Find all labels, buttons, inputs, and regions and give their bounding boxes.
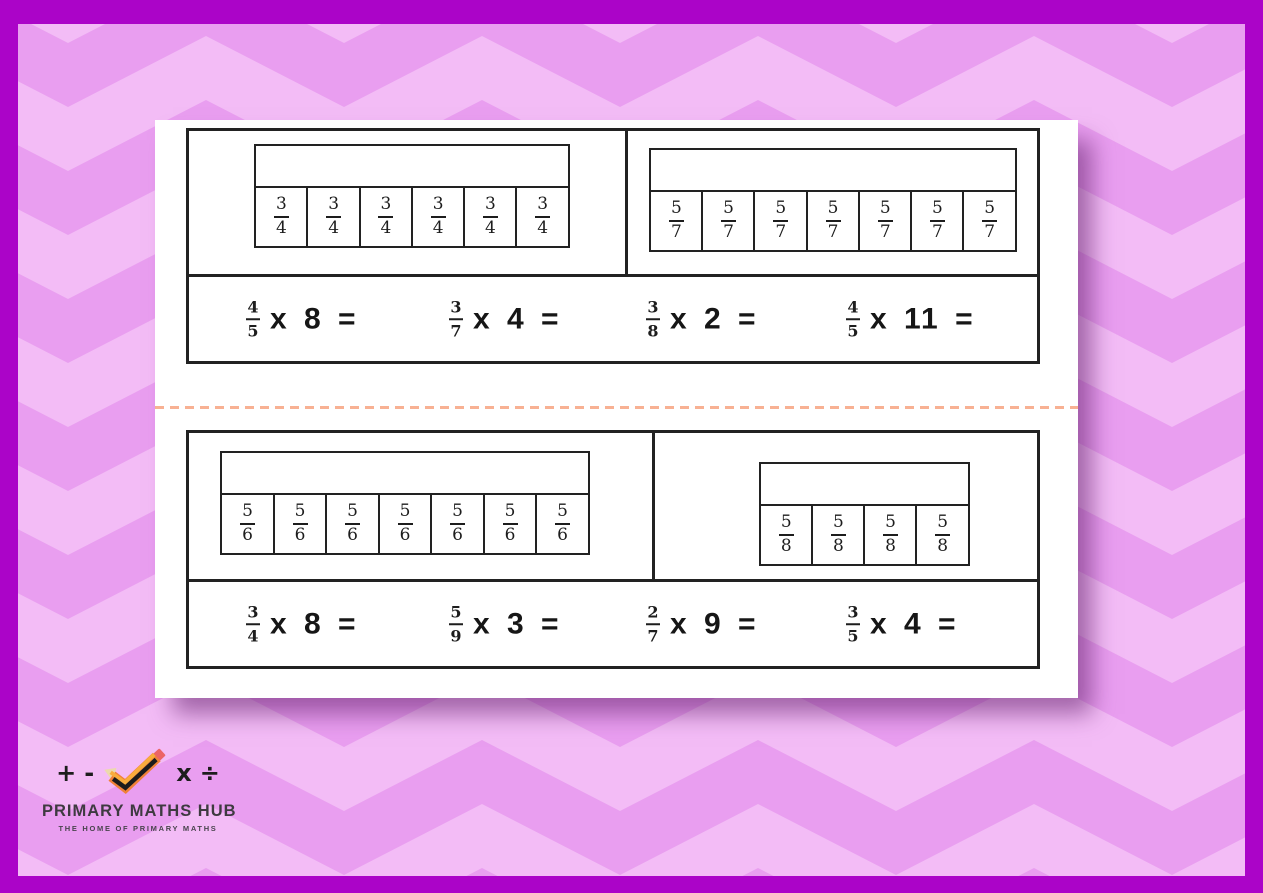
fraction-label: 57 [982,200,997,241]
bar-model-box-top-left: 343434343434 [186,128,628,277]
fraction-label: 58 [831,514,846,555]
whole-bar-empty [254,144,570,188]
fraction-label: 57 [930,200,945,241]
fraction-label: 34 [274,196,289,237]
problem-equation-text: x 8 = [270,302,358,336]
whole-bar-empty [649,148,1017,192]
fraction-numerator: 5 [242,503,253,520]
fraction-denominator: 8 [833,538,844,555]
fraction-numerator: 5 [984,200,995,217]
fraction-cell: 57 [753,190,808,252]
fraction-numerator: 5 [828,200,839,217]
fraction-numerator: 5 [450,604,461,620]
dashed-cut-line [155,406,1078,409]
pencil-checkmark-icon [103,747,167,799]
fraction-bar-line [246,623,260,626]
fraction-cell: 34 [254,186,309,248]
fraction-label: 34 [483,196,498,237]
fraction-numerator: 5 [400,503,411,520]
bar-model: 56565656565656 [220,451,590,555]
fraction-cell: 34 [306,186,361,248]
multiplication-problem: 45x 11 = [846,299,975,339]
fraction-bar-line [846,318,860,321]
fraction-numerator: 5 [932,200,943,217]
fraction-numerator: 3 [328,196,339,213]
fraction-cell: 56 [378,493,433,555]
fraction-label: 56 [240,503,255,544]
whole-bar-empty [220,451,590,495]
divide-icon: ÷ [200,761,220,785]
multiplication-problem: 37x 4 = [449,299,561,339]
fraction-denominator: 7 [880,224,891,241]
fraction-cell: 56 [483,493,538,555]
fraction-label: 56 [555,503,570,544]
fraction-label: 57 [669,200,684,241]
fraction-label: 45 [846,299,860,339]
fraction-cell: 57 [649,190,704,252]
fraction-denominator: 7 [671,224,682,241]
fraction-denominator: 6 [295,527,306,544]
logo-title: PRIMARY MATHS HUB [42,802,234,821]
fraction-numerator: 5 [775,200,786,217]
problem-equation-text: x 8 = [270,607,358,641]
problem-equation-text: x 9 = [670,607,758,641]
fraction-numerator: 5 [295,503,306,520]
fraction-numerator: 4 [847,299,858,315]
fraction-numerator: 3 [380,196,391,213]
fraction-cell: 34 [515,186,570,248]
fraction-numerator: 5 [723,200,734,217]
fraction-label: 56 [345,503,360,544]
fraction-cell: 57 [910,190,965,252]
fraction-denominator: 5 [847,323,858,339]
fraction-label: 56 [398,503,413,544]
fraction-cell: 56 [273,493,328,555]
multiplication-problem: 59x 3 = [449,604,561,644]
fraction-denominator: 8 [885,538,896,555]
fraction-denominator: 7 [828,224,839,241]
fraction-cell: 58 [863,504,918,566]
fraction-label: 38 [646,299,660,339]
fraction-numerator: 5 [885,514,896,531]
fraction-label: 57 [773,200,788,241]
fraction-numerator: 3 [433,196,444,213]
fraction-cell: 34 [359,186,414,248]
fraction-denominator: 7 [450,323,461,339]
multiplication-problem: 45x 8 = [246,299,358,339]
fraction-numerator: 5 [347,503,358,520]
primary-maths-hub-logo: + - x ÷ PRIMARY MATHS HUB THE HOME OF PR… [42,746,234,833]
fraction-numerator: 5 [671,200,682,217]
fraction-label: 59 [449,604,463,644]
fraction-label: 57 [721,200,736,241]
bar-model-box-bottom-right: 58585858 [652,430,1040,582]
fraction-label: 35 [846,604,860,644]
fraction-numerator: 3 [847,604,858,620]
fraction-bar-line [646,623,660,626]
problems-row-top: 45x 8 =37x 4 =38x 2 =45x 11 = [186,274,1040,364]
fraction-label: 58 [935,514,950,555]
fraction-numerator: 2 [647,604,658,620]
fraction-label: 56 [293,503,308,544]
fraction-numerator: 5 [557,503,568,520]
fraction-numerator: 5 [505,503,516,520]
plus-icon: + [56,761,76,785]
multiplication-problem: 34x 8 = [246,604,358,644]
fraction-label: 34 [246,604,260,644]
fraction-cell: 57 [962,190,1017,252]
fraction-denominator: 8 [647,323,658,339]
fraction-denominator: 6 [400,527,411,544]
fraction-label: 57 [826,200,841,241]
problems-row-bottom: 34x 8 =59x 3 =27x 9 =35x 4 = [186,579,1040,669]
fraction-label: 37 [449,299,463,339]
bar-model-box-top-right: 57575757575757 [625,128,1040,277]
fraction-bar-line [846,623,860,626]
fraction-label: 57 [878,200,893,241]
fraction-cell: 57 [806,190,861,252]
fraction-numerator: 3 [537,196,548,213]
fraction-numerator: 5 [781,514,792,531]
multiplication-problem: 27x 9 = [646,604,758,644]
fraction-cell: 34 [411,186,466,248]
fraction-label: 45 [246,299,260,339]
fraction-label: 34 [535,196,550,237]
fraction-numerator: 3 [647,299,658,315]
fraction-bar-line [449,623,463,626]
fraction-numerator: 3 [485,196,496,213]
fraction-cells-row: 58585858 [759,504,970,566]
fraction-numerator: 3 [247,604,258,620]
problem-equation-text: x 11 = [870,302,975,336]
fraction-denominator: 7 [723,224,734,241]
fraction-label: 58 [883,514,898,555]
fraction-cells-row: 57575757575757 [649,190,1017,252]
fraction-denominator: 6 [242,527,253,544]
bar-model: 58585858 [759,462,970,566]
fraction-label: 56 [450,503,465,544]
fraction-numerator: 3 [276,196,287,213]
fraction-cell: 58 [759,504,814,566]
fraction-denominator: 4 [380,220,391,237]
fraction-denominator: 7 [647,628,658,644]
bar-model-box-bottom-left: 56565656565656 [186,430,655,582]
fraction-cell: 56 [535,493,590,555]
logo-symbols-row: + - x ÷ [42,746,234,800]
fraction-label: 56 [503,503,518,544]
problem-equation-text: x 2 = [670,302,758,336]
fraction-denominator: 5 [847,628,858,644]
fraction-denominator: 4 [485,220,496,237]
fraction-denominator: 6 [557,527,568,544]
multiplication-problem: 38x 2 = [646,299,758,339]
multiplication-problem: 35x 4 = [846,604,958,644]
minus-icon: - [84,761,94,785]
fraction-numerator: 3 [450,299,461,315]
fraction-cell: 56 [220,493,275,555]
bar-model: 343434343434 [254,144,570,248]
fraction-denominator: 6 [452,527,463,544]
fraction-denominator: 4 [433,220,444,237]
fraction-cell: 56 [430,493,485,555]
whole-bar-empty [759,462,970,506]
fraction-cell: 57 [701,190,756,252]
fraction-label: 34 [378,196,393,237]
fraction-numerator: 4 [247,299,258,315]
fraction-label: 27 [646,604,660,644]
fraction-cell: 34 [463,186,518,248]
fraction-bar-line [246,318,260,321]
fraction-cell: 57 [858,190,913,252]
fraction-denominator: 4 [247,628,258,644]
fraction-numerator: 5 [937,514,948,531]
fraction-cells-row: 343434343434 [254,186,570,248]
fraction-cells-row: 56565656565656 [220,493,590,555]
fraction-label: 34 [431,196,446,237]
fraction-bar-line [646,318,660,321]
fraction-denominator: 4 [537,220,548,237]
worksheet-page: 343434343434 57575757575757 45x 8 =37x 4… [155,120,1078,698]
logo-tagline: THE HOME OF PRIMARY MATHS [42,824,234,833]
fraction-label: 34 [326,196,341,237]
fraction-denominator: 8 [937,538,948,555]
fraction-cell: 58 [915,504,970,566]
fraction-denominator: 7 [932,224,943,241]
fraction-denominator: 7 [984,224,995,241]
fraction-denominator: 9 [450,628,461,644]
fraction-denominator: 8 [781,538,792,555]
fraction-numerator: 5 [452,503,463,520]
fraction-denominator: 7 [775,224,786,241]
fraction-bar-line [449,318,463,321]
fraction-numerator: 5 [880,200,891,217]
bar-model: 57575757575757 [649,148,1017,252]
fraction-denominator: 4 [276,220,287,237]
problem-equation-text: x 4 = [473,302,561,336]
fraction-numerator: 5 [833,514,844,531]
fraction-label: 58 [779,514,794,555]
fraction-denominator: 6 [347,527,358,544]
problem-equation-text: x 4 = [870,607,958,641]
fraction-cell: 58 [811,504,866,566]
fraction-denominator: 4 [328,220,339,237]
fraction-denominator: 6 [505,527,516,544]
fraction-cell: 56 [325,493,380,555]
problem-equation-text: x 3 = [473,607,561,641]
multiply-icon: x [176,761,191,785]
fraction-denominator: 5 [247,323,258,339]
